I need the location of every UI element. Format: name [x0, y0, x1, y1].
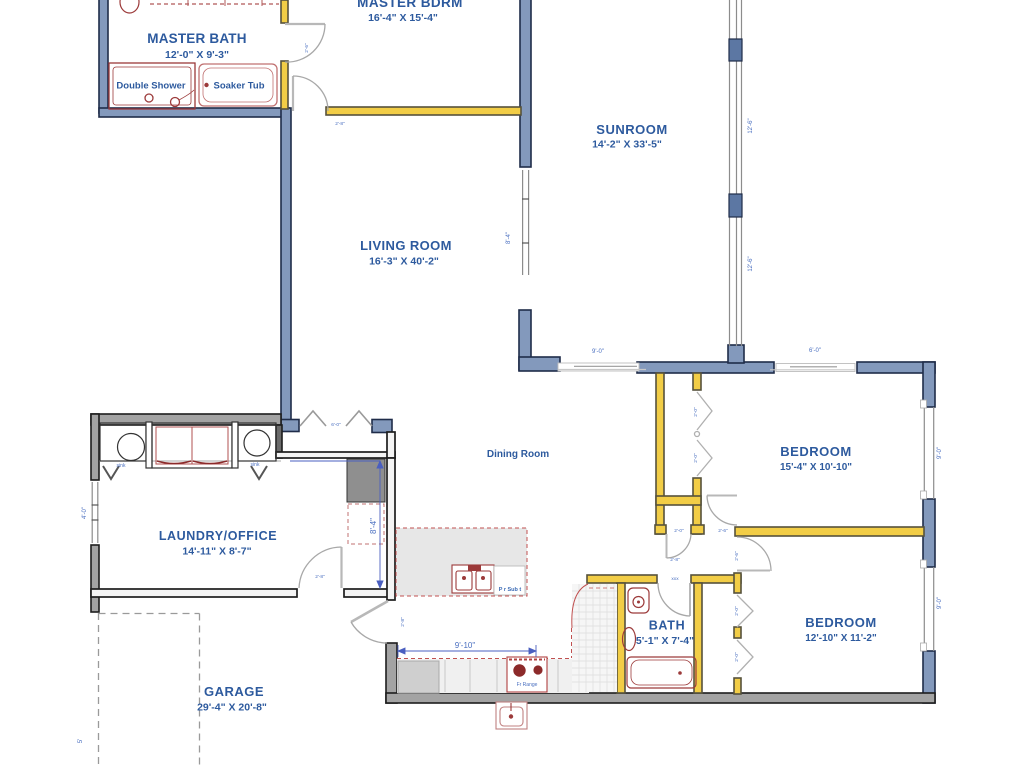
svg-text:9'-0": 9'-0" [937, 597, 943, 609]
svg-text:16'-3" X 40'-2": 16'-3" X 40'-2" [369, 256, 439, 268]
svg-text:GARAGE: GARAGE [204, 684, 264, 699]
svg-text:2'-0": 2'-0" [734, 606, 740, 616]
svg-text:9'-0": 9'-0" [937, 447, 943, 459]
svg-text:6'-0": 6'-0" [809, 348, 821, 354]
svg-text:14'-11" X 8'-7": 14'-11" X 8'-7" [182, 546, 251, 558]
svg-text:2'-8": 2'-8" [670, 557, 680, 563]
svg-text:2'-8": 2'-8" [315, 574, 325, 580]
svg-text:4'-0": 4'-0" [82, 507, 88, 519]
svg-text:12'-0" X 9'-3": 12'-0" X 9'-3" [165, 49, 229, 61]
svg-text:sink: sink [117, 463, 126, 469]
svg-text:BATH: BATH [649, 619, 686, 633]
svg-text:12'-6": 12'-6" [748, 118, 754, 133]
svg-text:6'-0": 6'-0" [331, 422, 341, 428]
svg-text:MASTER BATH: MASTER BATH [147, 31, 246, 46]
svg-text:BEDROOM: BEDROOM [805, 615, 876, 630]
svg-text:15'-4" X 10'-10": 15'-4" X 10'-10" [780, 462, 852, 473]
svg-text:P r Sub t: P r Sub t [499, 587, 522, 593]
svg-text:2'-6": 2'-6" [734, 551, 740, 561]
svg-text:9'-0": 9'-0" [592, 349, 604, 355]
svg-text:Fr Range: Fr Range [517, 682, 538, 688]
svg-text:16'-4" X 15'-4": 16'-4" X 15'-4" [368, 12, 438, 24]
svg-text:xxx: xxx [671, 577, 679, 582]
svg-text:5'-1" X 7'-4": 5'-1" X 7'-4" [636, 635, 694, 647]
svg-text:12'-10" X 11'-2": 12'-10" X 11'-2" [805, 633, 877, 644]
svg-text:2'-8": 2'-8" [335, 121, 345, 127]
svg-text:9'-10": 9'-10" [455, 641, 476, 650]
svg-text:2'-0": 2'-0" [693, 453, 699, 463]
svg-text:2'-0": 2'-0" [693, 407, 699, 417]
svg-text:LAUNDRY/OFFICE: LAUNDRY/OFFICE [159, 529, 277, 543]
svg-text:Double Shower: Double Shower [116, 81, 185, 92]
svg-text:8'-4": 8'-4" [506, 232, 512, 244]
svg-text:Soaker Tub: Soaker Tub [213, 81, 264, 92]
svg-text:8'-4": 8'-4" [369, 518, 378, 534]
svg-text:LIVING ROOM: LIVING ROOM [360, 238, 452, 253]
svg-text:BEDROOM: BEDROOM [780, 444, 851, 459]
svg-text:MASTER BDRM: MASTER BDRM [357, 0, 463, 10]
svg-text:12'-6": 12'-6" [748, 256, 754, 271]
svg-text:2'-6": 2'-6" [718, 528, 728, 534]
svg-text:2'-6": 2'-6" [304, 43, 310, 53]
svg-text:2'-0": 2'-0" [674, 528, 684, 534]
svg-text:14'-2" X 33'-5": 14'-2" X 33'-5" [592, 139, 662, 151]
svg-text:2'-8": 2'-8" [400, 617, 406, 627]
svg-text:Dining Room: Dining Room [487, 449, 549, 460]
svg-text:5': 5' [78, 739, 84, 743]
svg-text:sink: sink [251, 462, 260, 468]
svg-text:SUNROOM: SUNROOM [596, 122, 667, 137]
svg-text:2'-0": 2'-0" [734, 652, 740, 662]
svg-text:29'-4" X 20'-8": 29'-4" X 20'-8" [197, 702, 267, 714]
